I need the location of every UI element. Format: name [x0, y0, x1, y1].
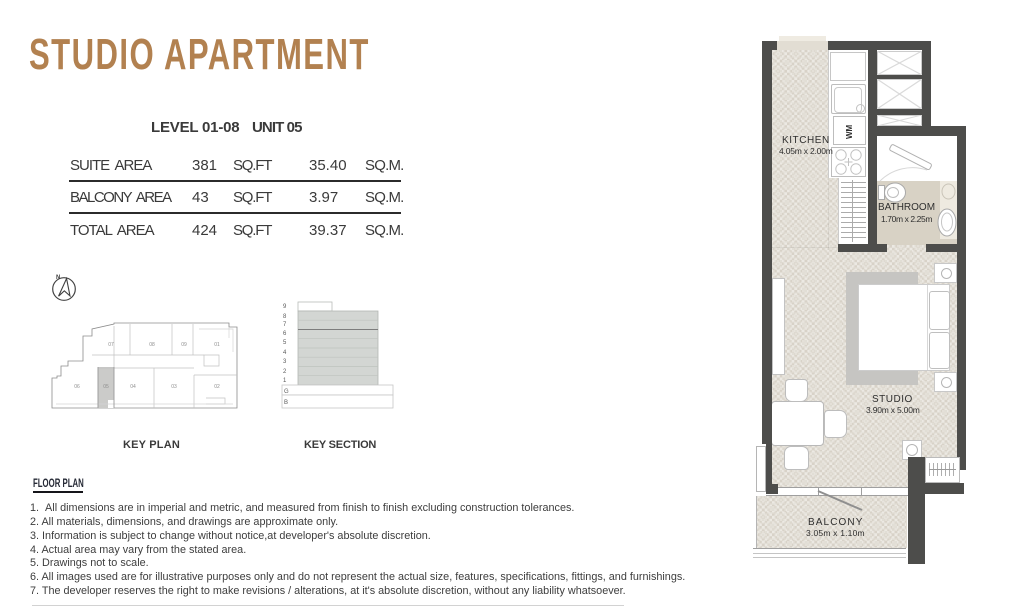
svg-text:02: 02 — [214, 384, 220, 390]
svg-text:05: 05 — [103, 384, 109, 390]
svg-text:N: N — [56, 275, 60, 281]
svg-text:03: 03 — [171, 384, 177, 390]
svg-text:09: 09 — [181, 342, 187, 348]
svg-text:3: 3 — [283, 359, 287, 365]
svg-text:G: G — [284, 389, 289, 395]
svg-text:04: 04 — [130, 384, 136, 390]
svg-text:2: 2 — [283, 369, 287, 375]
svg-text:4: 4 — [283, 350, 287, 356]
svg-text:B: B — [284, 400, 288, 406]
svg-text:5: 5 — [283, 340, 287, 346]
svg-text:1: 1 — [283, 378, 287, 384]
svg-text:9: 9 — [283, 304, 287, 310]
svg-text:6: 6 — [283, 331, 287, 337]
svg-text:07: 07 — [108, 342, 114, 348]
svg-text:06: 06 — [74, 384, 80, 390]
svg-text:7: 7 — [283, 322, 287, 328]
svg-text:08: 08 — [149, 342, 155, 348]
svg-text:8: 8 — [283, 314, 287, 320]
svg-text:01: 01 — [214, 342, 220, 348]
